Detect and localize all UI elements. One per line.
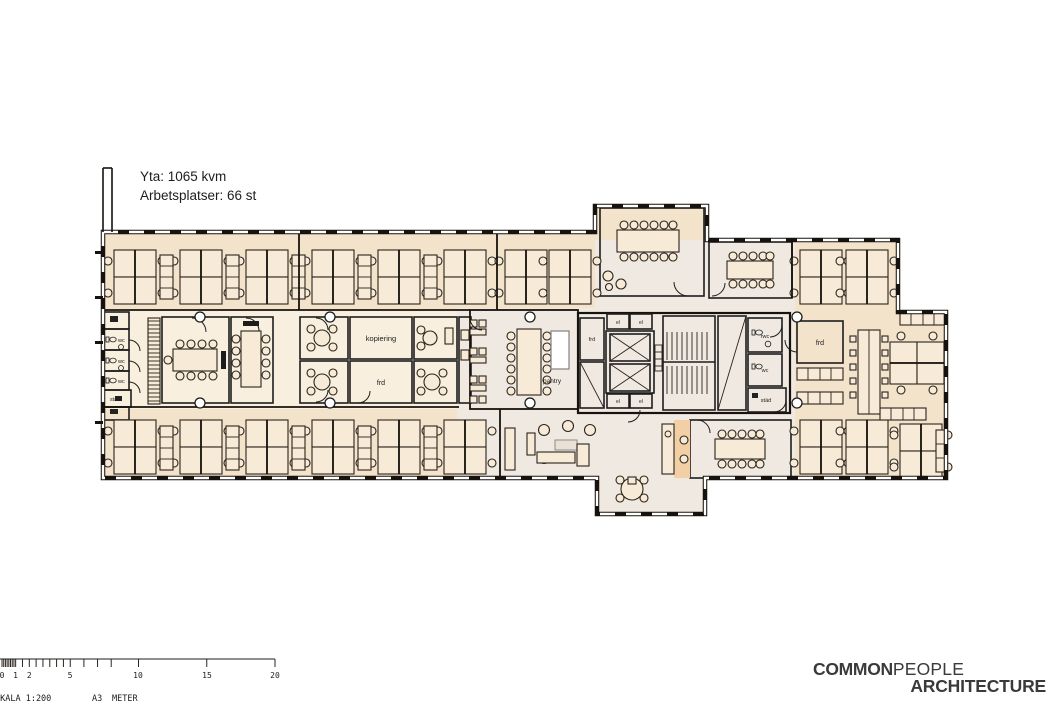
label-wc-core: wc [761, 368, 769, 374]
scale-label-10: 10 [133, 671, 143, 680]
scale-label-20: 20 [270, 671, 280, 680]
scale-label-5: 5 [68, 671, 73, 680]
scale-bar: 0 1 2 5 10 15 20 SKALA 1:200 A3 METER [0, 659, 280, 704]
label-pantry: pantry [543, 378, 562, 385]
area-text: Yta: 1065 kvm [140, 167, 256, 186]
kitchenette-strip [674, 420, 690, 478]
pantry-island [551, 331, 569, 369]
firm-logo: COMMONPEOPLE ARCHITECTURE [813, 661, 1046, 695]
label-wc-3: wc [117, 379, 125, 385]
workplaces-text: Arbetsplatser: 66 st [140, 186, 256, 205]
locker-strip [148, 318, 160, 404]
logo-word-common: COMMON [813, 659, 893, 679]
label-el-2: el [639, 320, 643, 326]
label-wc-2: wc [117, 359, 125, 365]
floor-plan-drawing: kopiering frd frd frd pantry wc wc wc st… [0, 0, 1052, 707]
plan-annotation: Yta: 1065 kvm Arbetsplatser: 66 st [140, 167, 256, 205]
paper-size-text: A3 [92, 694, 102, 704]
scale-label-0: 0 [0, 671, 5, 680]
label-stad-core: städ [761, 398, 771, 404]
scale-label-2: 2 [27, 671, 32, 680]
label-rwc: rwc [761, 334, 770, 340]
scale-label-15: 15 [202, 671, 212, 680]
label-el-3: el [616, 399, 620, 405]
label-frd-right: frd [816, 340, 824, 347]
floor-plan-sheet: Yta: 1065 kvm Arbetsplatser: 66 st [0, 0, 1052, 707]
scale-text: SKALA 1:200 [0, 694, 51, 704]
unit-text: METER [112, 694, 138, 704]
label-el-1: el [616, 320, 620, 326]
label-el-4: el [639, 399, 643, 405]
label-frd-core: frd [589, 337, 595, 343]
scale-label-1: 1 [13, 671, 18, 680]
label-frd-mid: frd [377, 380, 385, 387]
logo-word-architecture: ARCHITECTURE [813, 678, 1046, 695]
label-kopiering: kopiering [366, 334, 396, 343]
label-stad-left: städ [110, 397, 120, 403]
label-wc-1: wc [117, 338, 125, 344]
